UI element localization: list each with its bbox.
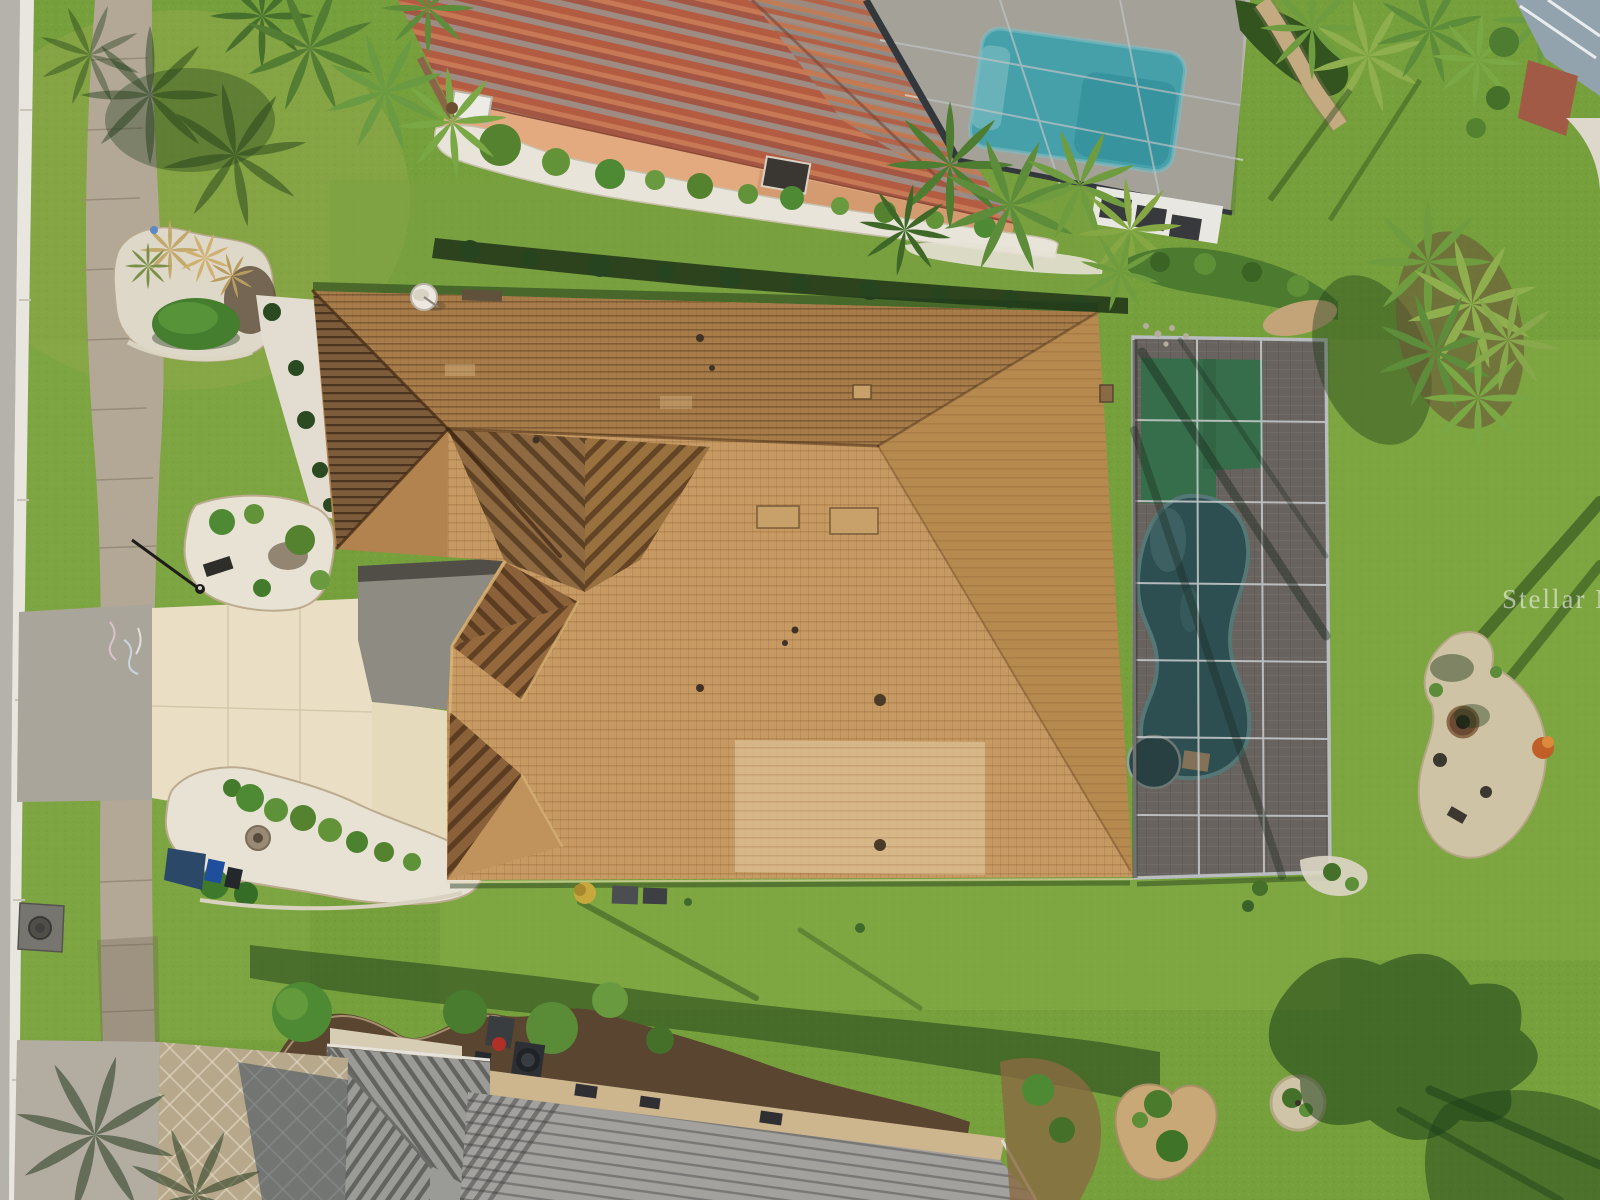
pale-patch [445, 364, 475, 376]
aerial-photo: Stellar MLS [0, 0, 1600, 1200]
blue-object [150, 226, 158, 234]
ornamental-grass [125, 243, 171, 289]
birdbath-bowl [253, 833, 263, 843]
driveway-apron [17, 604, 152, 802]
shrub-shadow [1430, 654, 1474, 682]
shrub-shadow [1454, 704, 1490, 728]
ac-unit [612, 886, 639, 905]
palm-seed-cluster [446, 102, 458, 114]
pale-patch [660, 396, 692, 409]
paver-driveway [0, 1036, 348, 1200]
chimney-vent [1100, 385, 1113, 402]
watermark: Stellar MLS [1502, 584, 1600, 614]
pool-enclosure [1128, 337, 1330, 884]
roof-equipment [462, 289, 502, 301]
hedge-highlight [158, 302, 218, 334]
palm-shadow [80, 25, 219, 164]
grill [492, 1037, 506, 1051]
ac-unit [643, 888, 668, 905]
eave-shadow-bottom [450, 883, 1130, 886]
storm-drain [18, 903, 64, 952]
